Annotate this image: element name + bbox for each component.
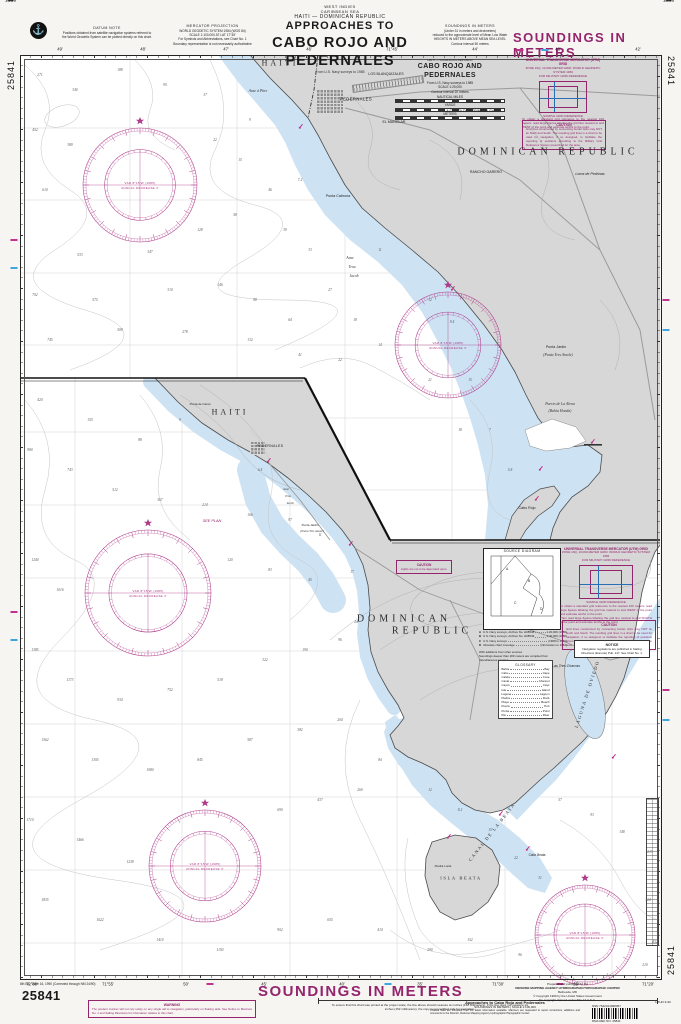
loran-tick bbox=[11, 639, 18, 641]
loran-tick bbox=[663, 689, 670, 691]
loran-marks-layer bbox=[0, 0, 681, 1024]
loran-tick bbox=[663, 329, 670, 331]
loran-tick bbox=[11, 611, 18, 613]
loran-tick bbox=[663, 299, 670, 301]
nautical-chart-page: { "chart": { "number": "25841", "soundin… bbox=[0, 0, 681, 1024]
barcode bbox=[592, 1008, 638, 1019]
soundings-banner-bottom: SOUNDINGS IN METERS bbox=[258, 983, 463, 1000]
loran-tick bbox=[207, 983, 214, 985]
footer-fineprint: Charted data are compiled from the lates… bbox=[430, 1009, 580, 1016]
loran-tick bbox=[11, 239, 18, 241]
chart-number-bottom-left: 25841 bbox=[22, 988, 61, 1003]
warning-body: The prudent mariner will not rely solely… bbox=[92, 1007, 252, 1015]
warning-box: WARNING The prudent mariner will not rel… bbox=[88, 1000, 256, 1018]
loran-tick bbox=[517, 49, 524, 51]
loran-tick bbox=[542, 49, 549, 51]
edition-note: 8th Ed., June 16, 1990 (Corrected throug… bbox=[20, 982, 95, 986]
stock-block: NSN 7642014098357 DMA REF NO. 25841 bbox=[592, 1004, 652, 1023]
litho-note: LITHO 9-90 bbox=[655, 1000, 671, 1004]
footer-subtitle-block: Approaches to Cabo Rojo and Pedernales S… bbox=[430, 1000, 580, 1016]
loran-tick bbox=[11, 267, 18, 269]
ref-number: DMA REF NO. 25841 bbox=[592, 1019, 652, 1023]
loran-tick bbox=[663, 719, 670, 721]
